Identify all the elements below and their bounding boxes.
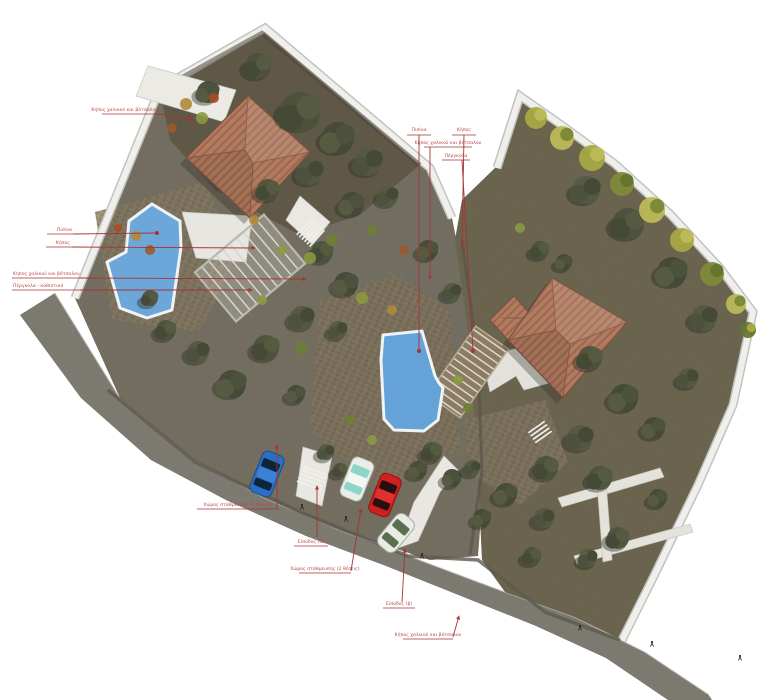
annotation-label-garden-gravel-pebble-4: Κήπος χαλικού και βότσαλου [395,631,462,638]
annotation-label-garden-gravel-pebble-1: Κήπος χαλικού και βότσαλου [91,106,158,113]
tree-canopy [300,308,314,322]
tree-canopy [670,259,688,277]
annotation-label-pergola-right: Πέργκολα [445,152,468,159]
tree-canopy [336,124,355,143]
shrub [326,234,338,246]
tree-canopy [325,445,335,455]
annotation-label-parking-area-1: Χώρος στάθμευσης (2 θέσεις) [203,501,273,508]
shrub [131,231,141,241]
tree-canopy [344,274,358,288]
bush [525,107,547,129]
tree-canopy [230,372,247,389]
shrub [145,245,155,255]
shrub [387,305,397,315]
shrub [257,295,267,305]
bush [550,126,574,150]
tree-canopy [622,386,639,403]
tree-canopy [702,307,718,323]
tree-canopy [431,444,443,456]
shrub [167,123,177,133]
annotation-label-pergola-seating: Πέργκολα - καθιστικό [13,282,63,289]
tree-canopy [543,510,555,522]
shrub [367,435,377,445]
tree-canopy [387,188,399,200]
tree-canopy [427,242,439,254]
bush [726,294,746,314]
leader-dot [155,231,159,235]
annotation-label-garden-gravel-pebble-3: Κήπος χαλικού και βότσαλου [415,139,482,146]
tree-canopy [337,322,348,333]
tree-canopy [652,419,665,432]
tree-canopy [339,464,347,472]
shrub [453,375,463,385]
bush-foliage [680,230,693,243]
annotation-label-garden-gravel-pebble-2: Κήπος χαλικού και βότσαλου [13,270,80,277]
tree-canopy [308,161,324,177]
tree-canopy [350,194,364,208]
annotation-label-pool-left: Πισίνα [57,226,72,233]
leader-dot [189,118,193,122]
tree-canopy [598,468,612,482]
shrub [209,93,219,103]
bush [740,322,756,338]
tree-canopy [264,337,280,353]
tree-canopy [481,510,492,521]
bush [579,145,605,171]
tree-canopy [451,284,462,295]
bush-foliage [560,128,573,141]
tree-canopy [196,343,209,356]
shrub [180,98,192,110]
tree-canopy [149,291,159,301]
tree-canopy [563,255,573,265]
tree-canopy [504,485,517,498]
bush-foliage [650,199,664,213]
tree-canopy [616,529,629,542]
annotation-label-parking-area-2: Χώρος στάθμευσης (2 θέσεις) [290,565,360,572]
bush-foliage [534,109,546,121]
tree-canopy [471,461,481,471]
annotation-label-entrance-a: Είσοδος (α) [298,538,325,545]
shrub [356,292,368,304]
shrub [249,215,259,225]
shrub [345,415,355,425]
tree-canopy [297,95,321,119]
bush [700,262,724,286]
tree-canopy [165,322,177,334]
tree-canopy [544,458,558,472]
tree-canopy [417,462,428,473]
shrub [463,403,473,413]
bush [639,197,665,223]
tree-canopy [657,490,668,501]
shrub [399,245,409,255]
shrub [277,245,287,255]
tree-canopy [687,370,699,382]
shrub [367,225,377,235]
tree-canopy [295,386,306,397]
annotation-label-entrance-b: Είσοδος (β) [386,600,413,607]
tree-canopy [588,348,602,362]
annotation-label-pool-right: Πισίνα [411,126,426,133]
shrub [114,224,122,232]
shrub [515,223,525,233]
tree-canopy [256,55,272,71]
tree-canopy [587,550,598,561]
shrub [296,342,308,354]
tree-canopy [578,427,594,443]
tree-canopy [539,242,550,253]
leader-dot [417,349,421,353]
bush-foliage [747,323,756,332]
tree-canopy [366,150,383,167]
tree-canopy [266,181,279,194]
site-plan-drawing: Κήπος χαλικού και βότσαλουΠισίναΚήποςΚήπ… [0,0,783,700]
bush [610,172,634,196]
shrub [196,112,208,124]
bush-foliage [735,296,746,307]
annotation-label-garden-right: Κήπος [457,126,472,133]
bush-foliage [710,264,723,277]
site-plan-canvas: Κήπος χαλικού και βότσαλουΠισίναΚήποςΚήπ… [0,0,783,700]
annotation-label-garden-left: Κήπος [56,239,71,246]
leader-dot [471,349,475,353]
bush-foliage [620,174,633,187]
bush-foliage [590,147,604,161]
tree-canopy [584,178,601,195]
bush [670,228,694,252]
shrub [304,252,316,264]
tree-canopy [531,548,542,559]
